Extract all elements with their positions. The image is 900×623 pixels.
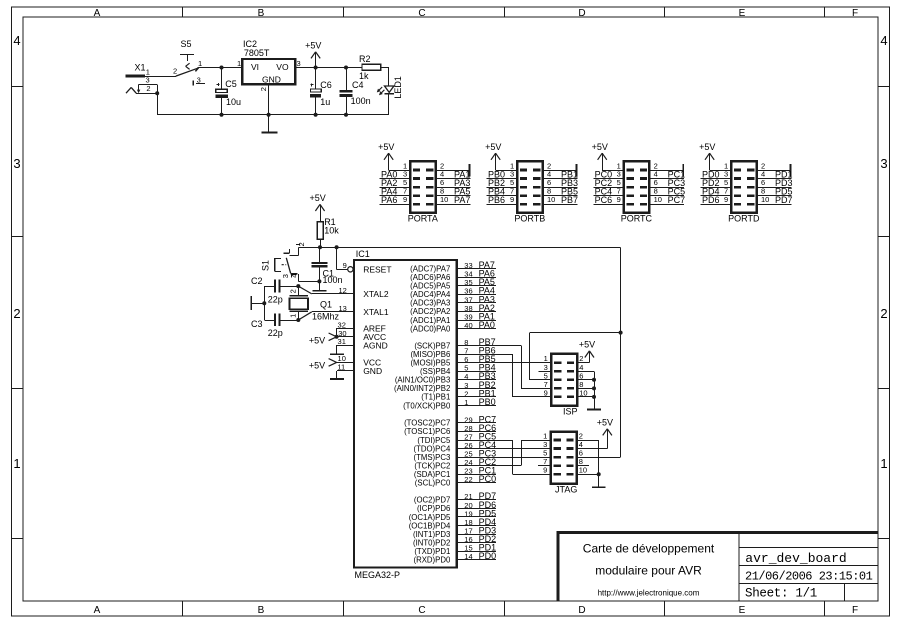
svg-text:+5V: +5V (579, 340, 595, 350)
svg-text:PORTB: PORTB (514, 214, 545, 224)
svg-text:C: C (418, 8, 425, 19)
svg-text:100n: 100n (323, 275, 343, 285)
svg-text:16Mhz: 16Mhz (312, 311, 340, 321)
svg-text:PORTC: PORTC (621, 214, 653, 224)
svg-text:VO: VO (276, 62, 289, 72)
svg-text:9: 9 (403, 195, 407, 204)
svg-text:(ADC0)PA0: (ADC0)PA0 (410, 324, 451, 333)
svg-text:RESET: RESET (363, 264, 391, 274)
svg-text:+5V: +5V (699, 142, 715, 152)
svg-text:C5: C5 (225, 79, 237, 89)
svg-text:E: E (739, 8, 746, 19)
svg-text:2: 2 (173, 66, 177, 75)
svg-text:10u: 10u (226, 97, 241, 107)
svg-text:1: 1 (237, 59, 241, 68)
svg-text:PORTA: PORTA (408, 214, 438, 224)
svg-text:C6: C6 (320, 80, 332, 90)
svg-text:3: 3 (880, 156, 887, 171)
svg-text:S1: S1 (260, 260, 270, 271)
svg-text:(SCL)PC0: (SCL)PC0 (415, 479, 451, 488)
svg-text:PD6: PD6 (702, 195, 720, 205)
svg-text:2: 2 (880, 306, 887, 321)
svg-text:1: 1 (198, 59, 202, 68)
svg-text:+5V: +5V (309, 361, 325, 371)
svg-text:12: 12 (338, 286, 346, 295)
svg-text:PA6: PA6 (381, 195, 397, 205)
svg-text:100n: 100n (351, 96, 371, 106)
svg-text:(T0/XCK)PB0: (T0/XCK)PB0 (403, 401, 451, 410)
svg-text:9: 9 (543, 466, 547, 475)
svg-text:22p: 22p (268, 328, 283, 338)
svg-text:+5V: +5V (309, 335, 325, 345)
svg-text:http://www.jelectronique.com: http://www.jelectronique.com (598, 588, 700, 597)
svg-text:Q1: Q1 (320, 299, 332, 309)
svg-text:+5V: +5V (485, 142, 501, 152)
svg-text:10: 10 (440, 195, 448, 204)
svg-text:avr_dev_board: avr_dev_board (745, 551, 846, 566)
svg-text:13: 13 (338, 304, 346, 313)
svg-text:1: 1 (13, 456, 20, 471)
svg-text:+5V: +5V (305, 41, 321, 51)
svg-text:F: F (852, 8, 858, 19)
svg-text:IC1: IC1 (356, 249, 370, 259)
svg-text:1u: 1u (320, 97, 330, 107)
svg-text:GND: GND (262, 75, 281, 85)
svg-text:4: 4 (290, 274, 299, 278)
svg-text:Carte de développement: Carte de développement (583, 542, 715, 556)
svg-text:2: 2 (259, 87, 268, 91)
svg-text:10: 10 (579, 466, 587, 475)
svg-text:1: 1 (288, 314, 297, 318)
svg-text:C2: C2 (251, 276, 263, 286)
svg-text:10k: 10k (324, 226, 339, 236)
svg-text:3: 3 (197, 75, 201, 84)
svg-text:10: 10 (547, 195, 555, 204)
svg-text:B: B (258, 605, 265, 616)
svg-text:PD7: PD7 (775, 195, 793, 205)
svg-text:XTAL2: XTAL2 (363, 289, 389, 299)
svg-text:ISP: ISP (563, 406, 578, 416)
svg-text:1k: 1k (359, 71, 369, 81)
svg-text:+5V: +5V (592, 142, 608, 152)
svg-text:PC6: PC6 (595, 195, 613, 205)
svg-text:E: E (739, 605, 746, 616)
svg-text:7805T: 7805T (244, 48, 270, 58)
svg-text:(RXD)PD0: (RXD)PD0 (413, 556, 450, 565)
svg-text:C3: C3 (251, 319, 263, 329)
svg-text:9: 9 (724, 195, 728, 204)
svg-text:R2: R2 (359, 54, 371, 64)
svg-text:9: 9 (510, 195, 514, 204)
svg-text:JTAG: JTAG (555, 484, 577, 494)
svg-text:VI: VI (251, 62, 259, 72)
svg-text:PC7: PC7 (668, 195, 686, 205)
svg-text:modulaire pour AVR: modulaire pour AVR (595, 564, 702, 578)
svg-text:3: 3 (297, 59, 301, 68)
svg-text:B: B (258, 8, 265, 19)
svg-text:A: A (94, 8, 101, 19)
svg-text:2: 2 (146, 84, 150, 93)
svg-text:XTAL1: XTAL1 (363, 307, 389, 317)
svg-text:31: 31 (338, 337, 346, 346)
svg-text:MEGA32-P: MEGA32-P (355, 570, 401, 580)
svg-text:C4: C4 (352, 80, 364, 90)
svg-text:2: 2 (297, 242, 306, 246)
svg-text:10: 10 (761, 195, 769, 204)
svg-text:2: 2 (13, 306, 20, 321)
svg-text:S5: S5 (180, 39, 191, 49)
svg-text:AGND: AGND (363, 340, 388, 350)
svg-text:1: 1 (880, 456, 887, 471)
svg-text:2: 2 (288, 289, 297, 293)
svg-text:3: 3 (13, 156, 20, 171)
svg-text:C: C (418, 605, 425, 616)
svg-text:A: A (94, 605, 101, 616)
svg-text:+5V: +5V (597, 418, 613, 428)
svg-text:PB7: PB7 (561, 195, 578, 205)
svg-text:PA7: PA7 (454, 195, 470, 205)
svg-text:D: D (578, 605, 585, 616)
svg-text:PB6: PB6 (488, 195, 505, 205)
svg-text:4: 4 (880, 33, 887, 48)
svg-text:GND: GND (363, 366, 382, 376)
svg-text:F: F (852, 605, 858, 616)
svg-text:+5V: +5V (378, 142, 394, 152)
svg-text:4: 4 (13, 33, 20, 48)
svg-text:X1: X1 (135, 63, 146, 73)
svg-text:22p: 22p (268, 295, 283, 305)
svg-text:PORTD: PORTD (728, 214, 760, 224)
svg-text:9: 9 (343, 261, 347, 270)
svg-text:21/06/2006 23:15:01: 21/06/2006 23:15:01 (745, 570, 873, 584)
svg-text:32: 32 (338, 320, 346, 329)
svg-text:+5V: +5V (309, 193, 325, 203)
svg-text:9: 9 (544, 388, 548, 397)
svg-text:LED1: LED1 (393, 76, 403, 99)
svg-text:D: D (578, 8, 585, 19)
svg-text:Sheet: 1/1: Sheet: 1/1 (745, 587, 817, 601)
svg-text:9: 9 (617, 195, 621, 204)
svg-text:10: 10 (654, 195, 662, 204)
